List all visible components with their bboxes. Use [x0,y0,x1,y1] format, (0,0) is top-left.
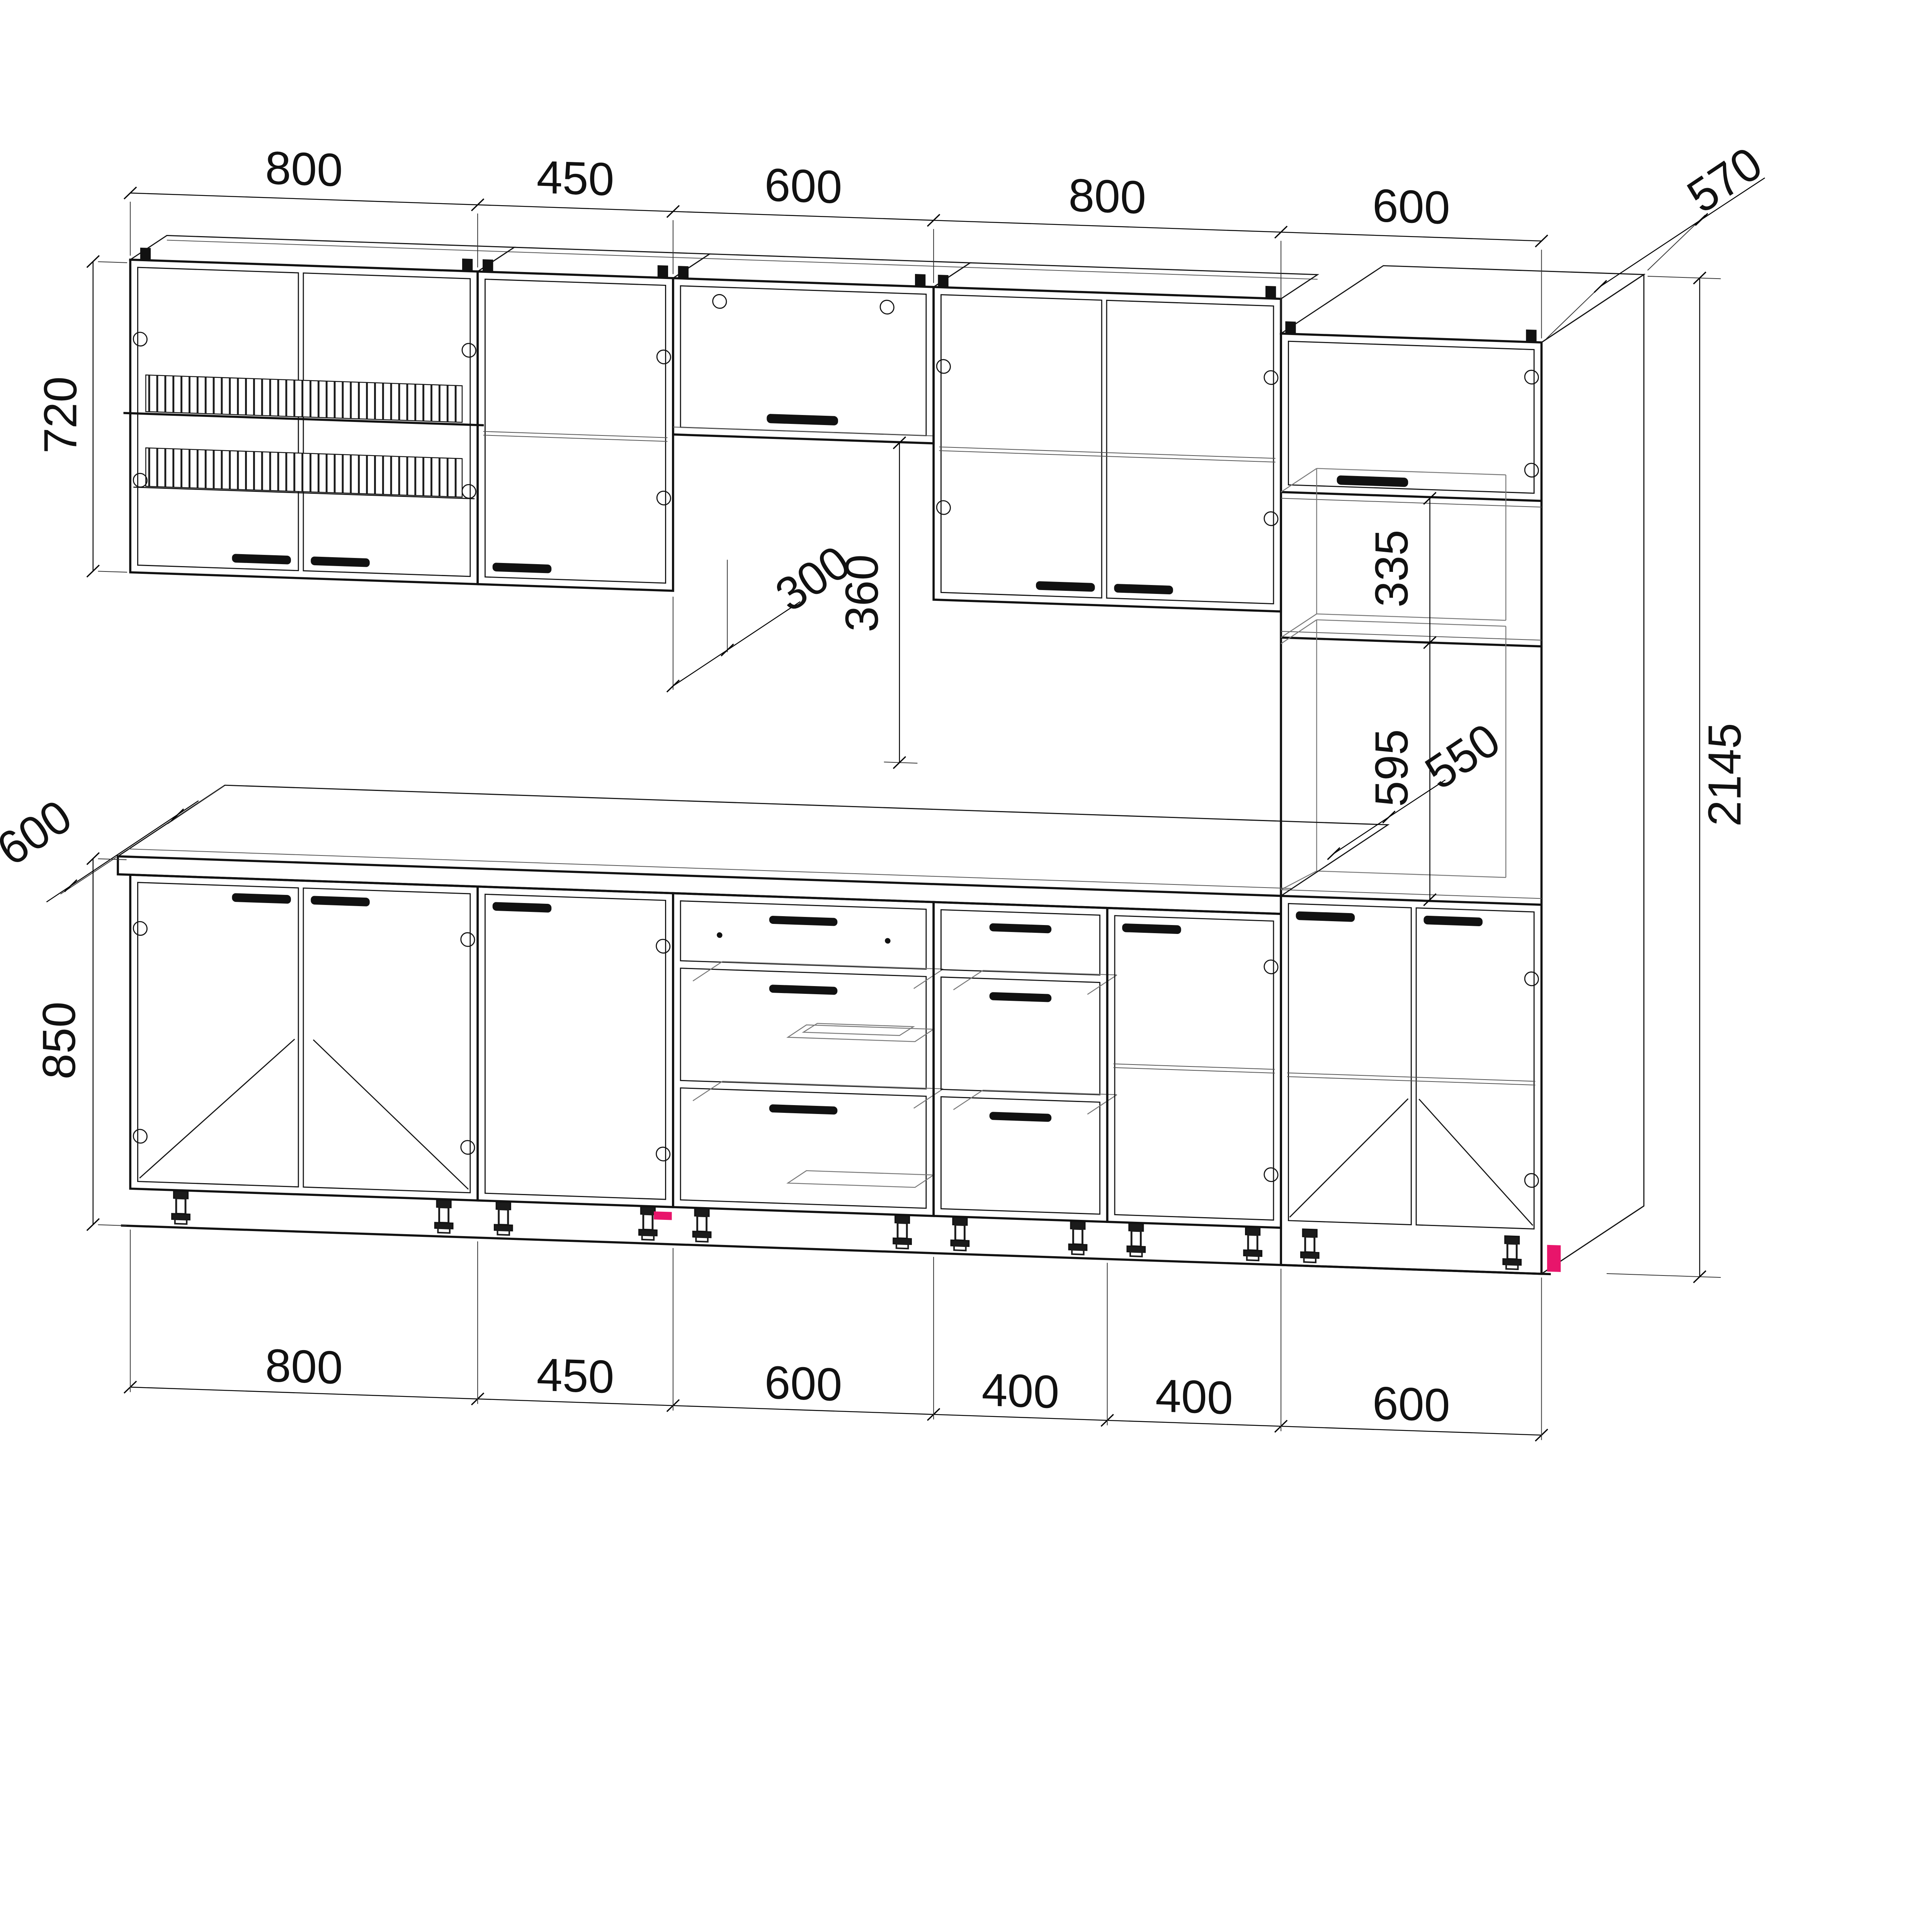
door-handle [1337,475,1408,487]
dim-label-oven-height: 595 [1366,728,1418,807]
hinge-icon [461,932,474,947]
cabinet-door [1288,903,1411,1225]
wall-cabinet-450 [478,246,709,592]
dim-label-bottom-5: 400 [1155,1369,1233,1424]
dim-label-bottom-6: 600 [1372,1377,1450,1432]
dim-label-column-height: 2145 [1699,722,1751,827]
dim-label-under-lift: 360 [836,553,888,633]
door-handle [232,893,291,904]
hinge-icon [1264,512,1278,526]
dim-label-bottom-2: 450 [537,1348,614,1403]
hinge-icon [1525,370,1538,384]
column-top-face [1281,262,1644,346]
hinge-icon [1525,1173,1538,1188]
hinge-icon [713,294,726,309]
hinge-icon [133,922,147,936]
mounting-bracket-icon [462,259,473,271]
dim-label-wall-height: 720 [34,376,86,455]
dim-label-top-1: 800 [265,141,343,196]
hinge-icon [1264,960,1278,974]
drawer-handle [990,992,1052,1002]
hinge-icon [657,491,670,505]
dim-label-niche-height: 335 [1366,529,1418,608]
hinge-icon [1264,1168,1278,1182]
dim-label-top-3: 600 [765,158,842,213]
hinge-icon [461,1140,474,1155]
drawer-front [941,910,1100,975]
door-handle [311,556,370,567]
cabinet-door [1107,300,1274,604]
mounting-bracket-icon [1285,321,1296,334]
door-swing-line [1419,1099,1533,1225]
base-cabinet-400-door [1107,908,1281,1228]
door-handle [493,902,552,913]
hinge-icon [937,359,950,374]
wall-cabinet-800 [934,262,1318,613]
floor-line [121,1154,1644,1277]
door-handle [767,414,838,425]
hinge-icon [133,1129,147,1143]
cabinet-door [485,894,665,1199]
mounting-bracket-icon [140,248,151,260]
hinge-icon [657,350,670,364]
base-cabinet-450 [478,886,673,1207]
countertop [118,782,1388,918]
mounting-bracket-icon [1265,286,1276,299]
door-swing-line [313,1040,468,1189]
dim-label-top-5: 600 [1372,179,1450,234]
dim-label-top-2: 450 [537,151,614,206]
column-side-face [1541,271,1644,1277]
base-cabinet-600-drawers [673,893,943,1216]
mounting-bracket-icon [915,274,925,287]
door-handle [1114,584,1173,595]
drawer-box [693,961,943,990]
kitchen-drawing: 800 450 600 800 600 570 720 [0,0,1932,1581]
mounting-bracket-icon [483,259,493,272]
adjustable-legs [172,1190,1521,1269]
dim-label-depth-570: 570 [1678,137,1771,223]
cabinet-door [303,888,470,1192]
door-handle [493,563,552,573]
dim-label-counter-depth: 600 [0,789,81,876]
cabinet-door [485,279,665,583]
screw-dot-icon [885,938,890,944]
mounting-bracket-icon [678,266,689,279]
cabinet-door [1416,908,1534,1229]
cabinet-door [1115,916,1274,1220]
hinge-icon [880,300,894,315]
dim-label-base-height: 850 [33,1001,85,1080]
screw-dot-icon [717,932,722,938]
base-cabinet-800 [130,875,478,1201]
door-handle [1122,923,1181,934]
drawer-handle [990,1112,1052,1122]
door-handle [1036,581,1095,592]
door-swing-line [1290,1095,1408,1221]
cabinet-door [138,883,298,1187]
door-swing-line [139,1034,294,1184]
door-handle [311,896,370,906]
cabinet-door [1288,341,1534,493]
hinge-icon [462,343,476,357]
dim-label-bottom-3: 600 [765,1356,842,1411]
drawing-page: 800 450 600 800 600 570 720 [0,0,1932,1581]
door-handle [232,554,291,565]
mounting-bracket-icon [938,275,948,287]
hinge-icon [462,485,476,499]
hinge-icon [133,473,147,488]
mounting-bracket-icon [1526,330,1536,342]
hinge-icon [656,939,670,954]
wall-cabinet-600-liftup [673,253,970,445]
drawer-handle [769,1104,838,1115]
door-handle [1423,916,1483,927]
highlighted-bracket [1547,1245,1561,1272]
hinge-icon [937,500,950,515]
door-handle [1296,911,1355,922]
hinge-icon [1525,972,1538,986]
hinge-icon [1264,371,1278,385]
drawer-handle [990,923,1052,933]
dim-label-bottom-1: 800 [265,1339,343,1394]
cabinet-door [941,295,1102,598]
wall-cabinet-800-dishrack [123,234,514,585]
highlighted-bracket [654,1211,672,1220]
hinge-icon [133,332,147,346]
drawer-box [693,1080,943,1189]
mounting-bracket-icon [658,265,668,278]
wall-rail [167,235,1318,279]
drawer-handle [769,916,838,926]
dim-label-top-4: 800 [1068,169,1146,224]
base-cabinet-400-drawers [934,902,1117,1222]
drawer-handle [769,985,838,995]
hinge-icon [1525,463,1538,478]
dim-label-bottom-4: 400 [981,1364,1059,1418]
hinge-icon [656,1147,670,1161]
